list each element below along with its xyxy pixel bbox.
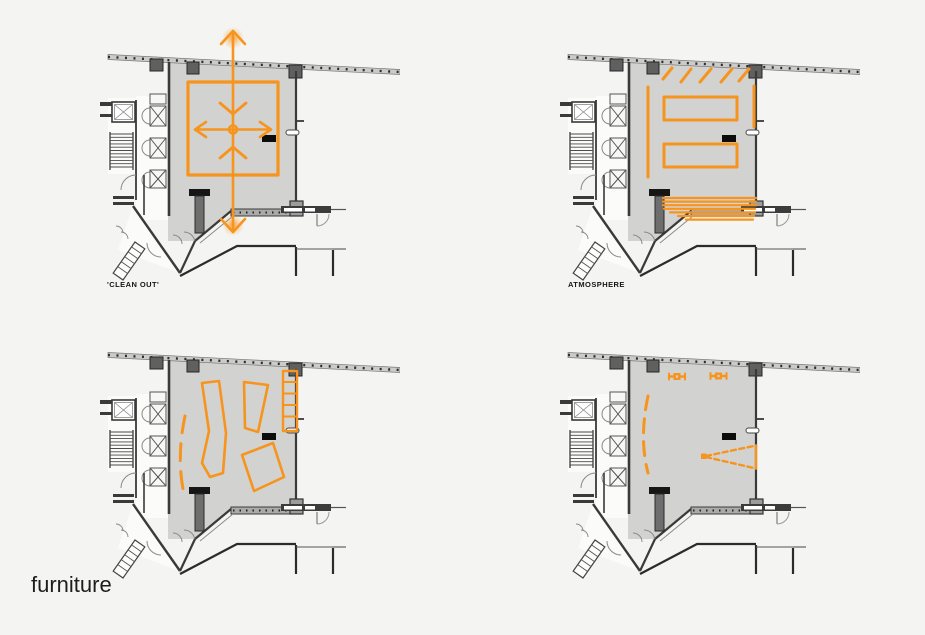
floor-plan-furniture xyxy=(100,308,400,608)
floor-plan-projection xyxy=(560,308,860,608)
diagram-canvas: 'CLEAN OUT' ATMOSPHERE furniture xyxy=(0,0,925,635)
floor-plan-atmosphere xyxy=(560,10,860,310)
plan-label-atmosphere: ATMOSPHERE xyxy=(568,280,625,289)
floor-plan-clean-out xyxy=(100,10,400,310)
plan-label-clean-out: 'CLEAN OUT' xyxy=(107,280,159,289)
page-title: furniture xyxy=(31,572,112,598)
